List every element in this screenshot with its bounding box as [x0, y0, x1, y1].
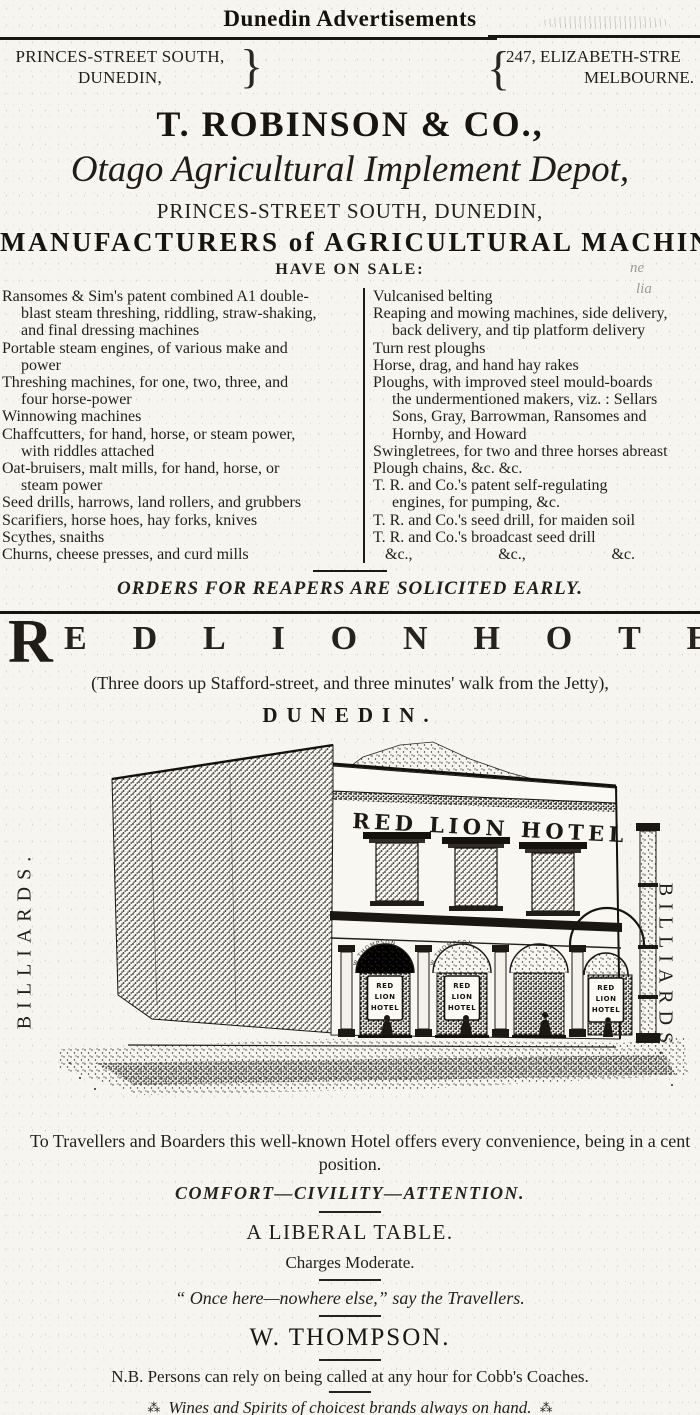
- travellers-quote: “ Once here—nowhere else,” say the Trave…: [0, 1287, 700, 1309]
- headline-letter: T: [618, 622, 641, 656]
- asterism-mark: ⁂: [532, 1400, 561, 1415]
- charges-line: Charges Moderate.: [0, 1253, 700, 1273]
- sale-item-line: Seed drills, harrows, land rollers, and …: [2, 494, 363, 511]
- address-line: 247, ELIZABETH-STRE: [506, 46, 694, 67]
- short-rule: [319, 1359, 381, 1361]
- sale-item-line: back delivery, and tip platform delivery: [373, 322, 668, 339]
- hotel-headline: R EDLIONHOTEL: [0, 617, 700, 669]
- handwriting-mark: ne: [630, 260, 644, 277]
- sale-item-line: steam power: [2, 477, 363, 494]
- sale-item-line: T. R. and Co.'s seed drill, for maiden s…: [373, 512, 668, 529]
- newspaper-page: Dunedin Advertisements PRINCES-STREET SO…: [0, 0, 700, 1415]
- have-on-sale-heading: HAVE ON SALE:: [0, 260, 700, 280]
- pilaster: [415, 945, 432, 1037]
- billiards-vertical-right: BILLIARDS.: [654, 843, 677, 1103]
- pilaster: [338, 945, 355, 1037]
- headline-letter: I: [272, 622, 285, 656]
- etcetera: &c.,: [385, 546, 413, 563]
- svg-text:LION: LION: [452, 993, 473, 1001]
- headline-letter: O: [331, 622, 357, 656]
- short-rule: [329, 1391, 371, 1393]
- sale-list-left-column: Ransomes & Sim's patent combined A1 doub…: [0, 288, 363, 563]
- sale-list: Ransomes & Sim's patent combined A1 doub…: [0, 288, 700, 563]
- street-address: PRINCES-STREET SOUTH, DUNEDIN,: [0, 199, 700, 223]
- sale-item-line: Scarifiers, horse hoes, hay forks, knive…: [2, 512, 363, 529]
- sale-list-right-lines: Vulcanised beltingReaping and mowing mac…: [373, 288, 668, 546]
- headline-initial-letter: R: [8, 614, 53, 670]
- billiards-vertical-left: BILLIARDS.: [14, 810, 37, 1070]
- orders-notice: ORDERS FOR REAPERS ARE SOLICITED EARLY.: [0, 577, 700, 601]
- pilaster: [492, 945, 509, 1037]
- etcetera: &c.: [611, 546, 635, 563]
- sale-item-line: Churns, cheese presses, and curd mills: [2, 546, 363, 563]
- manufacturers-line: MANUFACTURERS of AGRICULTURAL MACHINERY: [0, 227, 700, 257]
- svg-text:RED: RED: [376, 982, 393, 990]
- section-divider-rule: [0, 611, 700, 614]
- hotel-caption-line2: position.: [0, 1153, 700, 1175]
- sale-item-line: Swingletrees, for two and three horses a…: [373, 443, 668, 460]
- headline-letter: E: [64, 622, 87, 656]
- proprietor-name: W. THOMPSON.: [0, 1323, 700, 1353]
- short-rule: [319, 1315, 381, 1317]
- address-dunedin: PRINCES-STREET SOUTH, DUNEDIN,: [4, 46, 236, 88]
- svg-text:LION: LION: [375, 993, 396, 1001]
- address-row: PRINCES-STREET SOUTH, DUNEDIN, } { 247, …: [0, 44, 700, 104]
- headline-letters: EDLIONHOTEL: [64, 622, 700, 656]
- address-melbourne: 247, ELIZABETH-STRE MELBOURNE.: [506, 46, 694, 88]
- headline-letter: L: [203, 622, 226, 656]
- sale-item-line: blast steam threshing, riddling, straw-s…: [2, 305, 363, 322]
- sale-item-line: and final dressing machines: [2, 322, 363, 339]
- hotel-engraving-figure: RED LION HOTEL: [0, 733, 700, 1118]
- headline-letter: N: [403, 622, 428, 656]
- short-rule: [319, 1211, 381, 1213]
- doorway-bay: W THOMPSON RED LION HOTEL: [430, 940, 491, 1037]
- divider-rule: [488, 35, 700, 38]
- sale-item-line: Sons, Gray, Barrowman, Ransomes and: [373, 408, 668, 425]
- handwriting-mark: lia: [636, 281, 652, 298]
- robinson-advertisement: PRINCES-STREET SOUTH, DUNEDIN, } { 247, …: [0, 44, 700, 601]
- nb-line: N.B. Persons can rely on being called at…: [0, 1367, 700, 1387]
- svg-text:RED: RED: [453, 982, 470, 990]
- sale-item-line: the undermentioned makers, viz. : Sellar…: [373, 391, 668, 408]
- headline-letter: O: [546, 622, 572, 656]
- sale-item-line: Portable steam engines, of various make …: [2, 340, 363, 357]
- wines-text: Wines and Spirits of choicest brands alw…: [168, 1398, 531, 1415]
- etcetera-row: &c., &c., &c.: [373, 546, 635, 563]
- address-line: DUNEDIN,: [4, 67, 236, 88]
- sale-item-line: power: [2, 357, 363, 374]
- sale-item-line: Scythes, snaiths: [2, 529, 363, 546]
- liberal-table-line: A LIBERAL TABLE.: [0, 1219, 700, 1245]
- city-line: DUNEDIN.: [0, 703, 700, 727]
- sale-item-line: T. R. and Co.'s broadcast seed drill: [373, 529, 668, 546]
- svg-text:HOTEL: HOTEL: [448, 1004, 476, 1012]
- sale-item-line: Chaffcutters, for hand, horse, or steam …: [2, 426, 363, 443]
- wines-line: ⁂Wines and Spirits of choicest brands al…: [0, 1397, 700, 1415]
- sale-item-line: Hornby, and Howard: [373, 426, 668, 443]
- sale-item-line: with riddles attached: [2, 443, 363, 460]
- asterism-mark: ⁂: [139, 1400, 168, 1415]
- ink-smudge: [540, 16, 670, 29]
- hotel-engraving: RED LION HOTEL: [0, 733, 700, 1118]
- pilaster: [569, 945, 586, 1037]
- sale-item-line: four horse-power: [2, 391, 363, 408]
- short-rule: [313, 570, 387, 572]
- sale-item-line: Ploughs, with improved steel mould-board…: [373, 374, 668, 391]
- sale-item-line: Horse, drag, and hand hay rakes: [373, 357, 668, 374]
- brace-glyph: }: [240, 44, 263, 90]
- svg-text:HOTEL: HOTEL: [371, 1004, 399, 1012]
- svg-text:HOTEL: HOTEL: [592, 1006, 620, 1014]
- svg-text:LION: LION: [596, 995, 617, 1003]
- headline-letter: H: [473, 622, 499, 656]
- headline-letter: D: [133, 622, 158, 656]
- red-lion-advertisement: R EDLIONHOTEL (Three doors up Stafford-s…: [0, 617, 700, 1415]
- side-wall: [112, 745, 333, 1033]
- headline-letter: E: [687, 622, 700, 656]
- sale-item-line: Turn rest ploughs: [373, 340, 668, 357]
- doorway-bay: W THOMPSON RED LION HOTEL: [353, 940, 414, 1037]
- location-line: (Three doors up Stafford-street, and thr…: [0, 672, 700, 694]
- hotel-motto: COMFORT—CIVILITY—ATTENTION.: [0, 1181, 700, 1205]
- sale-item-line: Ransomes & Sim's patent combined A1 doub…: [2, 288, 363, 305]
- sale-item-line: Oat-bruisers, malt mills, for hand, hors…: [2, 460, 363, 477]
- hotel-caption-line1: To Travellers and Boarders this well-kno…: [0, 1130, 700, 1153]
- sale-item-line: Plough chains, &c. &c.: [373, 460, 668, 477]
- sale-item-line: Winnowing machines: [2, 408, 363, 425]
- sale-item-line: Vulcanised belting: [373, 288, 668, 305]
- doorway-bay: [510, 944, 568, 1036]
- etcetera: &c.,: [498, 546, 526, 563]
- address-line: MELBOURNE.: [584, 67, 694, 88]
- sale-item-line: engines, for pumping, &c.: [373, 494, 668, 511]
- short-rule: [319, 1279, 381, 1281]
- sale-item-line: Reaping and mowing machines, side delive…: [373, 305, 668, 322]
- svg-text:RED: RED: [597, 984, 614, 992]
- depot-subtitle: Otago Agricultural Implement Depot,: [0, 148, 700, 192]
- company-name: T. ROBINSON & CO.,: [0, 104, 700, 144]
- sale-item-line: T. R. and Co.'s patent self-regulating: [373, 477, 668, 494]
- porch-bay: RED LION HOTEL: [584, 953, 632, 1037]
- sale-item-line: Threshing machines, for one, two, three,…: [2, 374, 363, 391]
- address-line: PRINCES-STREET SOUTH,: [4, 46, 236, 67]
- sale-list-right-column: Vulcanised beltingReaping and mowing mac…: [363, 288, 668, 563]
